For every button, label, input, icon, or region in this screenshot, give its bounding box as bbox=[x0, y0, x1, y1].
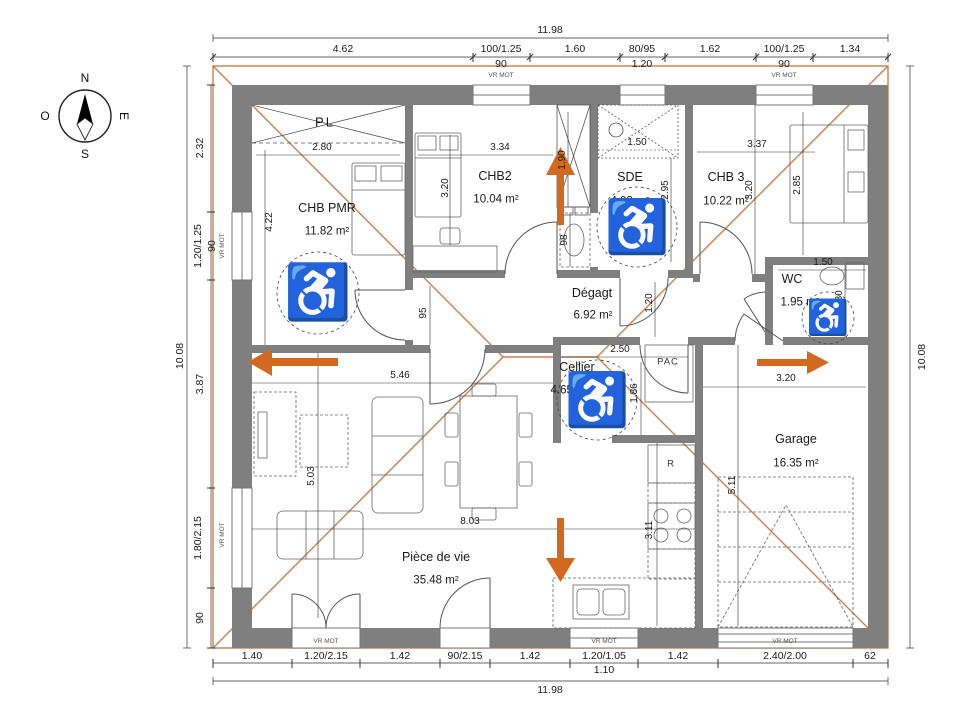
shutter-label: VR MOT bbox=[220, 522, 227, 547]
room-label-pl: PL bbox=[315, 116, 335, 129]
wheelchair-icon: ♿ bbox=[284, 262, 351, 325]
dim-top-seg: 1.62 bbox=[700, 44, 720, 55]
room-area-piece-de-vie: 35.48 m² bbox=[413, 575, 458, 587]
shutter-label: VR MOT bbox=[488, 73, 513, 80]
dim-bottom-seg: 1.42 bbox=[520, 651, 540, 662]
dim-top-seg: 100/1.25 bbox=[764, 44, 805, 55]
dim-label: 95 bbox=[419, 307, 429, 318]
dim-label: 3.20 bbox=[745, 180, 755, 199]
shutter-label: VR MOT bbox=[313, 639, 338, 646]
dim-bottom-overall: 11.98 bbox=[537, 685, 563, 696]
door-swings bbox=[292, 222, 783, 628]
dim-bottom-seg: 1.20/2.15 bbox=[304, 651, 348, 662]
dim-top-seg: 1.60 bbox=[565, 44, 585, 55]
dim-bottom-sub: 1.10 bbox=[594, 665, 614, 676]
dim-label: 3.34 bbox=[490, 143, 509, 153]
room-area-chb2: 10.04 m² bbox=[473, 194, 518, 206]
dim-label: 4.22 bbox=[265, 212, 275, 231]
dim-label: 98 bbox=[560, 234, 570, 245]
dim-label: 1.86 bbox=[630, 383, 640, 402]
dim-label: 5.11 bbox=[728, 476, 738, 495]
shutter-label: VR MOT bbox=[220, 233, 227, 258]
dim-label: 5.03 bbox=[307, 466, 317, 485]
dim-left-seg: 1.20/1.25 bbox=[193, 224, 204, 268]
dim-bottom-seg: 62 bbox=[864, 651, 876, 662]
dim-left-sub: 90 bbox=[207, 240, 218, 252]
room-label-degagement: Dégagt bbox=[572, 287, 612, 300]
dim-label: 3.20 bbox=[776, 374, 795, 384]
dim-left-seg: 3.87 bbox=[195, 374, 206, 394]
room-label-wc: WC bbox=[782, 273, 803, 286]
dim-label: 1.50 bbox=[627, 138, 646, 148]
dim-label: 1.90 bbox=[558, 150, 568, 169]
dim-label: 5.46 bbox=[390, 371, 409, 381]
dim-label: 3.11 bbox=[645, 521, 655, 540]
room-label-chb3: CHB 3 bbox=[708, 171, 745, 184]
dim-top-seg: 1.34 bbox=[840, 44, 860, 55]
room-label-chb2: CHB2 bbox=[478, 170, 511, 183]
compass-south-label: S bbox=[81, 147, 89, 161]
dim-bottom-seg: 2.40/2.00 bbox=[763, 651, 807, 662]
dim-bottom-seg: 1.42 bbox=[668, 651, 688, 662]
dim-top-seg: 4.62 bbox=[333, 44, 353, 55]
equip-label-fridge: R bbox=[667, 459, 675, 469]
dim-top-sub: 1.20 bbox=[632, 59, 652, 70]
dim-top-seg: 100/1.25 bbox=[481, 44, 522, 55]
dim-bottom-seg: 1.42 bbox=[390, 651, 410, 662]
dim-label: 2.80 bbox=[312, 143, 331, 153]
room-area-garage: 16.35 m² bbox=[773, 458, 818, 470]
dim-bottom-seg: 1.40 bbox=[242, 651, 262, 662]
floor-plan: N O E S 11.98 4.62 100/1.25 1.60 80/95 1… bbox=[0, 0, 960, 711]
dim-label: 3.37 bbox=[747, 140, 766, 150]
dim-label: 1.50 bbox=[813, 258, 832, 268]
room-label-piece-de-vie: Pièce de vie bbox=[402, 551, 470, 564]
dim-bottom-seg: 90/2.15 bbox=[447, 651, 482, 662]
dim-top-seg: 80/95 bbox=[629, 44, 655, 55]
equip-label-pac: PAC bbox=[657, 357, 679, 367]
dim-label: 1.20 bbox=[645, 293, 655, 312]
openings bbox=[232, 85, 853, 648]
shutter-label: VR MOT bbox=[591, 639, 616, 646]
dim-right-overall: 10.08 bbox=[917, 344, 928, 370]
dim-left-seg: 90 bbox=[195, 612, 206, 624]
dim-left-seg: 2.32 bbox=[195, 138, 206, 158]
room-area-chb-pmr: 11.82 m² bbox=[305, 226, 350, 238]
compass-west-label: O bbox=[40, 109, 49, 123]
dim-label: 3.20 bbox=[441, 178, 451, 197]
room-label-chb-pmr: CHB PMR bbox=[298, 202, 356, 215]
dim-top-overall: 11.98 bbox=[537, 25, 563, 36]
shutter-label: VR MOT bbox=[771, 73, 796, 80]
dim-left-seg: 1.80/2.15 bbox=[193, 516, 204, 560]
room-label-sde: SDE bbox=[617, 171, 643, 184]
dim-label: 2.85 bbox=[793, 175, 803, 194]
dim-top-sub: 90 bbox=[495, 59, 507, 70]
compass-east-label: E bbox=[117, 112, 131, 120]
room-area-chb3: 10.22 m² bbox=[703, 196, 748, 208]
room-area-degagement: 6.92 m² bbox=[574, 310, 613, 322]
wheelchair-icon: ♿ bbox=[565, 370, 630, 431]
dim-bottom-seg: 1.20/1.05 bbox=[582, 651, 626, 662]
floorplan-drawing bbox=[0, 0, 960, 711]
compass-north-label: N bbox=[81, 71, 90, 85]
wheelchair-icon: ♿ bbox=[605, 197, 670, 258]
shutter-label: VR MOT bbox=[772, 639, 797, 646]
dim-left-overall: 10.08 bbox=[175, 343, 186, 369]
dim-top-sub: 90 bbox=[778, 59, 790, 70]
dim-label: 2.50 bbox=[610, 345, 629, 355]
wheelchair-icon: ♿ bbox=[807, 298, 849, 338]
room-label-garage: Garage bbox=[775, 433, 817, 446]
dim-label: 8.03 bbox=[460, 517, 479, 527]
compass-rose bbox=[59, 90, 111, 142]
